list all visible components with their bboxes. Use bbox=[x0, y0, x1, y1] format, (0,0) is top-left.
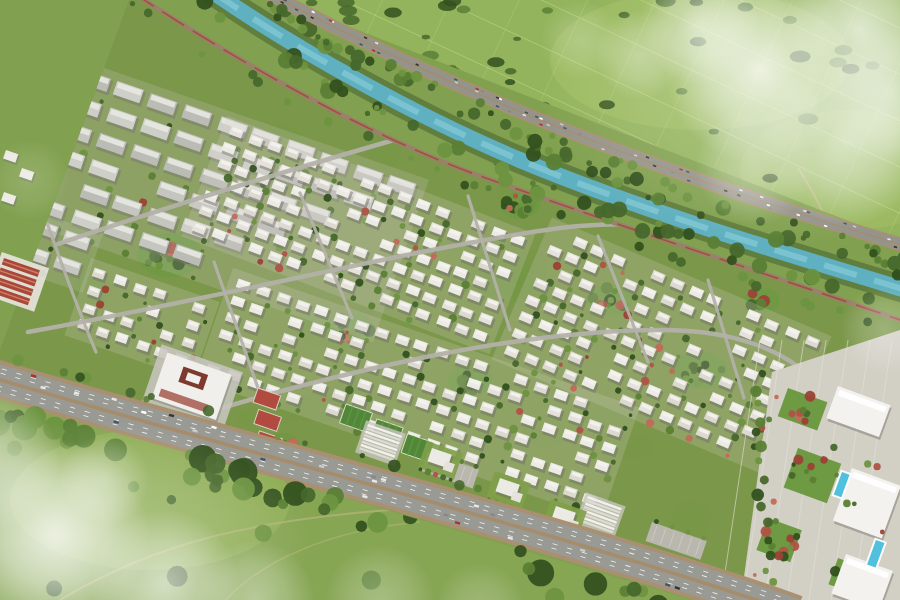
riverbank-tree bbox=[437, 143, 453, 159]
roadside-tree bbox=[385, 59, 396, 70]
plaza-bush bbox=[830, 444, 837, 451]
roadside-tree bbox=[276, 4, 287, 15]
plaza-bush bbox=[766, 417, 772, 423]
boundary-tree bbox=[668, 252, 678, 262]
riverbank-tree bbox=[329, 79, 343, 93]
boundary-tree bbox=[806, 302, 815, 311]
riverbank-tree bbox=[837, 248, 848, 259]
highway-belt-tree bbox=[356, 521, 367, 532]
cloud bbox=[60, 435, 150, 525]
roadside-tree bbox=[287, 15, 295, 23]
cloud bbox=[540, 0, 620, 80]
highway-belt-tree bbox=[301, 488, 316, 503]
riverbank-tree bbox=[215, 12, 226, 23]
riverbank-tree bbox=[786, 270, 797, 281]
boundary-tree bbox=[144, 9, 153, 18]
roadside-tree bbox=[869, 249, 877, 257]
boundary-tree bbox=[486, 185, 492, 191]
roadside-tree bbox=[315, 34, 320, 39]
plaza-bush bbox=[880, 530, 885, 535]
plaza-tree-belt bbox=[752, 428, 761, 437]
plaza-bush bbox=[864, 460, 871, 467]
riverbank-tree bbox=[365, 57, 374, 66]
boundary-tree bbox=[408, 155, 413, 160]
riverbank-tree bbox=[332, 43, 343, 54]
plaza-bush bbox=[843, 500, 851, 508]
boundary-tree bbox=[434, 166, 439, 171]
riverbank-tree bbox=[594, 206, 606, 218]
riverbank-tree bbox=[350, 60, 361, 71]
riverbank-tree bbox=[289, 55, 303, 69]
plaza-tree-belt bbox=[755, 441, 767, 453]
highway-belt-tree bbox=[275, 434, 281, 440]
field-tree bbox=[505, 79, 515, 85]
cloud bbox=[695, 105, 815, 225]
field-tree bbox=[457, 6, 471, 14]
riverbank-tree bbox=[380, 109, 387, 116]
plaza-tree-belt bbox=[755, 417, 765, 427]
plaza-tree-belt bbox=[766, 551, 776, 561]
highway-belt-tree bbox=[126, 388, 136, 398]
riverbank-tree bbox=[468, 107, 480, 119]
field-tree bbox=[384, 8, 402, 18]
boundary-tree bbox=[556, 210, 565, 219]
highway-belt-tree bbox=[148, 393, 155, 400]
highway-belt-tree bbox=[454, 480, 465, 491]
highway-belt-tree bbox=[318, 503, 330, 515]
highway-belt-tree bbox=[12, 355, 24, 367]
riverbank-tree bbox=[451, 141, 466, 156]
highway-belt-tree bbox=[367, 512, 388, 533]
plaza-bush bbox=[774, 395, 779, 400]
riverbank-tree bbox=[322, 83, 329, 90]
roadside-tree bbox=[476, 98, 485, 107]
roadside-tree bbox=[500, 119, 511, 130]
park-tree bbox=[513, 194, 518, 199]
highway-belt-tree bbox=[203, 405, 214, 416]
roadside-tree bbox=[296, 15, 306, 25]
plaza-tree-belt bbox=[756, 502, 766, 512]
roadside-tree bbox=[428, 84, 435, 91]
roadside-tree bbox=[267, 1, 273, 7]
aerial-community-render bbox=[0, 0, 900, 600]
boundary-tree bbox=[199, 51, 205, 57]
plaza-tree-belt bbox=[751, 489, 764, 502]
boundary-tree bbox=[836, 307, 843, 314]
highway-belt-tree bbox=[474, 485, 482, 493]
field-tree bbox=[438, 0, 457, 11]
boundary-tree bbox=[284, 98, 291, 105]
highway-belt-tree bbox=[75, 372, 85, 382]
riverbank-tree bbox=[545, 147, 553, 155]
riverbank-tree bbox=[551, 185, 557, 191]
boundary-tree bbox=[470, 181, 478, 189]
riverbank-tree bbox=[752, 258, 768, 274]
plaza-bush bbox=[874, 463, 881, 470]
roadside-tree bbox=[399, 70, 406, 77]
boundary-tree bbox=[524, 205, 532, 213]
field-tree bbox=[505, 68, 516, 75]
field-tree bbox=[343, 15, 360, 25]
roadside-tree bbox=[411, 71, 422, 82]
riverbank-tree bbox=[495, 161, 510, 176]
field-tree bbox=[422, 35, 430, 40]
plaza-tree-belt bbox=[754, 399, 761, 406]
riverbank-tree bbox=[635, 223, 651, 239]
highway-belt-tree bbox=[388, 459, 401, 472]
highway-belt-tree bbox=[523, 562, 536, 575]
riverbank-tree bbox=[530, 186, 546, 202]
field-tree bbox=[339, 6, 357, 16]
riverbank-tree bbox=[365, 111, 370, 116]
boundary-tree bbox=[324, 118, 333, 127]
boundary-tree bbox=[751, 281, 761, 291]
highway-belt-tree bbox=[627, 582, 642, 597]
highway-belt-tree bbox=[584, 572, 607, 595]
boundary-tree bbox=[635, 242, 644, 251]
riverbank-tree bbox=[509, 127, 522, 140]
boundary-tree bbox=[460, 181, 469, 190]
riverbank-tree bbox=[457, 111, 464, 118]
highway-belt-tree bbox=[60, 368, 68, 376]
boundary-tree bbox=[253, 77, 263, 87]
plaza-tree-belt bbox=[769, 578, 777, 586]
riverbank-tree bbox=[407, 120, 418, 131]
plaza-tree-belt bbox=[760, 475, 769, 484]
plaza-bush bbox=[852, 501, 857, 506]
roadside-tree bbox=[298, 24, 308, 34]
riverbank-tree bbox=[874, 256, 881, 263]
roadside-tree bbox=[864, 244, 870, 250]
riverbank-tree bbox=[727, 255, 737, 265]
scene-svg bbox=[0, 0, 900, 600]
field-tree bbox=[487, 57, 504, 67]
plaza-tree-belt bbox=[763, 517, 773, 527]
highway-belt-tree bbox=[514, 545, 526, 557]
boundary-tree bbox=[130, 1, 135, 6]
riverbank-tree bbox=[527, 134, 542, 149]
plaza-tree-belt bbox=[763, 568, 769, 574]
roadside-tree bbox=[323, 39, 330, 46]
riverbank-tree bbox=[546, 154, 563, 171]
highway-belt-tree bbox=[302, 441, 307, 446]
highway-belt-tree bbox=[360, 453, 365, 458]
riverbank-tree bbox=[804, 269, 821, 286]
boundary-tree bbox=[363, 131, 373, 141]
plaza-bush bbox=[771, 499, 777, 505]
plaza-tree-belt bbox=[750, 386, 762, 398]
riverbank-tree bbox=[374, 105, 379, 110]
boundary-tree bbox=[738, 272, 748, 282]
boundary-tree bbox=[531, 202, 537, 208]
roadside-tree bbox=[345, 45, 355, 55]
roadside-tree bbox=[488, 110, 494, 116]
boundary-tree bbox=[676, 257, 686, 267]
field-tree bbox=[513, 37, 521, 41]
park-tree bbox=[506, 205, 512, 211]
plaza-tree-belt bbox=[755, 457, 762, 464]
riverbank-tree bbox=[825, 279, 840, 294]
plaza-tree-belt bbox=[764, 537, 772, 545]
riverbank-tree bbox=[577, 196, 592, 211]
plaza-bush bbox=[753, 573, 757, 577]
